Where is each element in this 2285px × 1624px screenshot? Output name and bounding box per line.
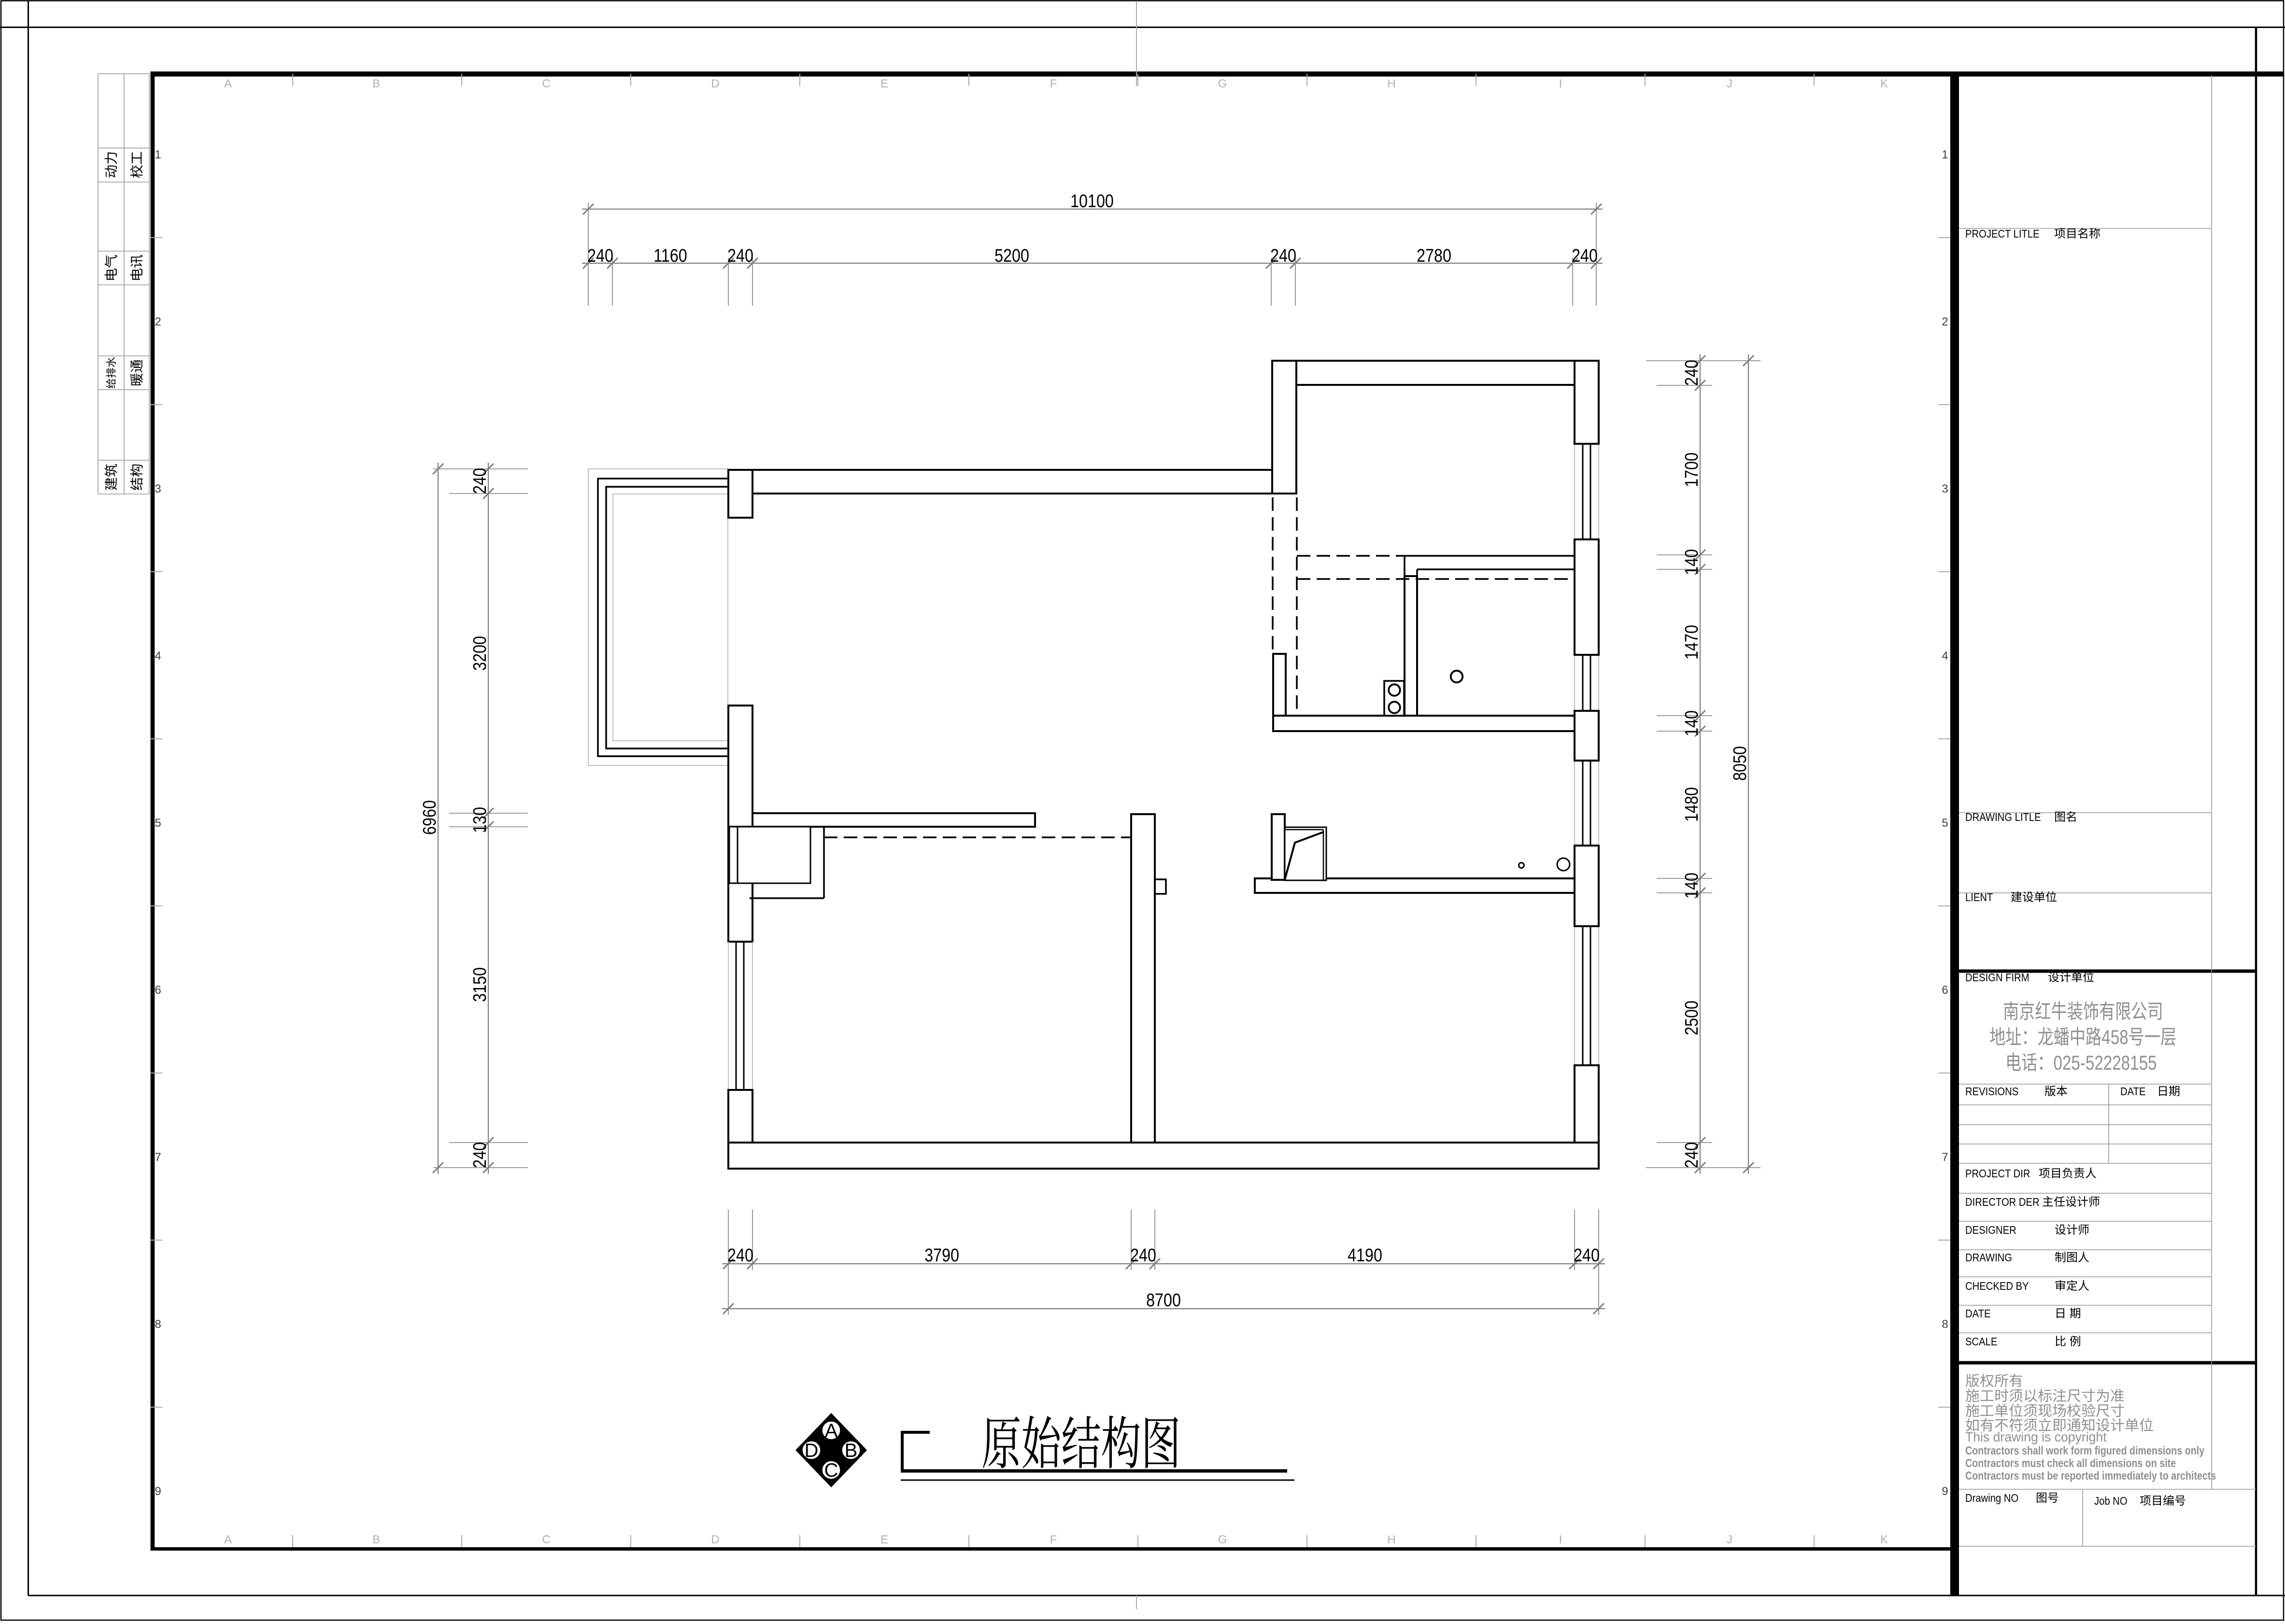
svg-text:3200: 3200 bbox=[470, 636, 490, 671]
svg-text:D: D bbox=[711, 77, 719, 90]
svg-text:240: 240 bbox=[727, 246, 753, 266]
svg-text:240: 240 bbox=[1682, 360, 1702, 386]
svg-text:1470: 1470 bbox=[1682, 625, 1702, 660]
svg-text:DATE: DATE bbox=[2120, 1085, 2145, 1098]
svg-text:5: 5 bbox=[1942, 817, 1948, 830]
svg-text:SCALE: SCALE bbox=[1965, 1335, 1997, 1348]
svg-text:D: D bbox=[805, 1440, 819, 1461]
svg-text:LIENT: LIENT bbox=[1965, 891, 1993, 904]
svg-text:E: E bbox=[880, 77, 888, 90]
svg-text:240: 240 bbox=[470, 468, 490, 494]
svg-text:F: F bbox=[1050, 77, 1057, 90]
svg-text:5: 5 bbox=[155, 817, 161, 830]
svg-text:A: A bbox=[825, 1420, 838, 1441]
svg-text:6: 6 bbox=[155, 984, 161, 997]
svg-text:2780: 2780 bbox=[1417, 246, 1451, 266]
svg-text:140: 140 bbox=[1682, 873, 1702, 899]
svg-text:K: K bbox=[1880, 77, 1888, 90]
svg-text:3790: 3790 bbox=[924, 1245, 959, 1266]
svg-text:5200: 5200 bbox=[994, 246, 1029, 266]
svg-text:1160: 1160 bbox=[653, 246, 687, 266]
svg-text:This drawing is copyright: This drawing is copyright bbox=[1965, 1429, 2107, 1444]
svg-text:C: C bbox=[542, 1533, 550, 1546]
svg-text:Contractors must be reported i: Contractors must be reported immediately… bbox=[1965, 1469, 2216, 1482]
svg-text:REVISIONS: REVISIONS bbox=[1965, 1085, 2018, 1098]
svg-text:DESIGNER: DESIGNER bbox=[1965, 1224, 2016, 1237]
svg-text:1: 1 bbox=[1942, 148, 1948, 161]
svg-text:6: 6 bbox=[1942, 984, 1948, 997]
svg-text:025-52228155: 025-52228155 bbox=[2054, 1052, 2157, 1074]
svg-text:2: 2 bbox=[155, 315, 161, 328]
svg-text:G: G bbox=[1218, 1533, 1227, 1546]
svg-text:140: 140 bbox=[1682, 549, 1702, 575]
svg-text:240: 240 bbox=[1270, 246, 1296, 266]
svg-text:H: H bbox=[1387, 77, 1395, 90]
svg-text:PROJECT DIR: PROJECT DIR bbox=[1965, 1167, 2030, 1180]
svg-text:B: B bbox=[372, 1533, 380, 1546]
svg-text:Drawing NO: Drawing NO bbox=[1965, 1492, 2018, 1505]
svg-text:3: 3 bbox=[1942, 482, 1948, 495]
svg-text:6960: 6960 bbox=[420, 800, 440, 835]
svg-text:8050: 8050 bbox=[1730, 746, 1750, 781]
svg-text:DRAWING LITLE: DRAWING LITLE bbox=[1965, 811, 2041, 824]
svg-text:G: G bbox=[1218, 77, 1227, 90]
svg-text:C: C bbox=[542, 77, 550, 90]
svg-text:CHECKED BY: CHECKED BY bbox=[1965, 1280, 2029, 1293]
svg-text:8: 8 bbox=[1942, 1318, 1948, 1331]
svg-text:1480: 1480 bbox=[1682, 787, 1702, 822]
svg-text:F: F bbox=[1050, 1533, 1057, 1546]
svg-text:D: D bbox=[711, 1533, 719, 1546]
svg-text:3150: 3150 bbox=[470, 967, 490, 1002]
svg-text:H: H bbox=[1387, 1533, 1395, 1546]
svg-text:2500: 2500 bbox=[1682, 1001, 1702, 1035]
svg-text:I: I bbox=[1559, 1533, 1562, 1546]
svg-text:458: 458 bbox=[2101, 1026, 2128, 1049]
svg-text:4: 4 bbox=[155, 650, 161, 663]
svg-text:C: C bbox=[824, 1460, 838, 1481]
svg-text:A: A bbox=[224, 77, 232, 90]
svg-text:Contractors must check all dim: Contractors must check all dimensions on… bbox=[1965, 1456, 2176, 1469]
svg-text:7: 7 bbox=[155, 1151, 161, 1164]
svg-text:9: 9 bbox=[1942, 1485, 1948, 1498]
svg-text:7: 7 bbox=[1942, 1151, 1948, 1164]
svg-text:PROJECT LITLE: PROJECT LITLE bbox=[1965, 227, 2040, 240]
svg-text:140: 140 bbox=[1682, 710, 1702, 736]
svg-text:DRAWING: DRAWING bbox=[1965, 1251, 2012, 1264]
svg-text:240: 240 bbox=[727, 1245, 753, 1266]
svg-text:Contractors shall work form fi: Contractors shall work form figured dime… bbox=[1965, 1444, 2205, 1457]
svg-text:240: 240 bbox=[1130, 1245, 1156, 1266]
svg-text:240: 240 bbox=[1572, 246, 1598, 266]
svg-text:4: 4 bbox=[1942, 650, 1948, 663]
svg-text:1: 1 bbox=[155, 148, 161, 161]
svg-text:1700: 1700 bbox=[1682, 452, 1702, 487]
svg-text:J: J bbox=[1727, 1533, 1732, 1546]
svg-text:130: 130 bbox=[470, 807, 490, 833]
svg-text:10100: 10100 bbox=[1070, 191, 1114, 212]
svg-text:I: I bbox=[1559, 77, 1562, 90]
svg-text:2: 2 bbox=[1942, 315, 1948, 328]
svg-text:9: 9 bbox=[155, 1485, 161, 1498]
svg-text:3: 3 bbox=[155, 482, 161, 495]
svg-text:B: B bbox=[845, 1440, 858, 1461]
svg-text:K: K bbox=[1880, 1533, 1888, 1546]
svg-text:240: 240 bbox=[587, 246, 613, 266]
svg-text:B: B bbox=[372, 77, 380, 90]
svg-text:A: A bbox=[224, 1533, 232, 1546]
svg-text:8: 8 bbox=[155, 1318, 161, 1331]
svg-text:240: 240 bbox=[1574, 1245, 1600, 1266]
svg-text:DIRECTOR DER: DIRECTOR DER bbox=[1965, 1196, 2040, 1209]
svg-text:Job NO: Job NO bbox=[2094, 1495, 2128, 1508]
svg-text:4190: 4190 bbox=[1348, 1245, 1382, 1266]
svg-text:DESIGN FIRM: DESIGN FIRM bbox=[1965, 971, 2030, 984]
svg-text:E: E bbox=[880, 1533, 888, 1546]
svg-text:DATE: DATE bbox=[1965, 1307, 1990, 1320]
svg-text:J: J bbox=[1727, 77, 1732, 90]
svg-text:240: 240 bbox=[470, 1142, 490, 1168]
svg-text:240: 240 bbox=[1682, 1142, 1702, 1168]
svg-text:8700: 8700 bbox=[1146, 1290, 1181, 1311]
